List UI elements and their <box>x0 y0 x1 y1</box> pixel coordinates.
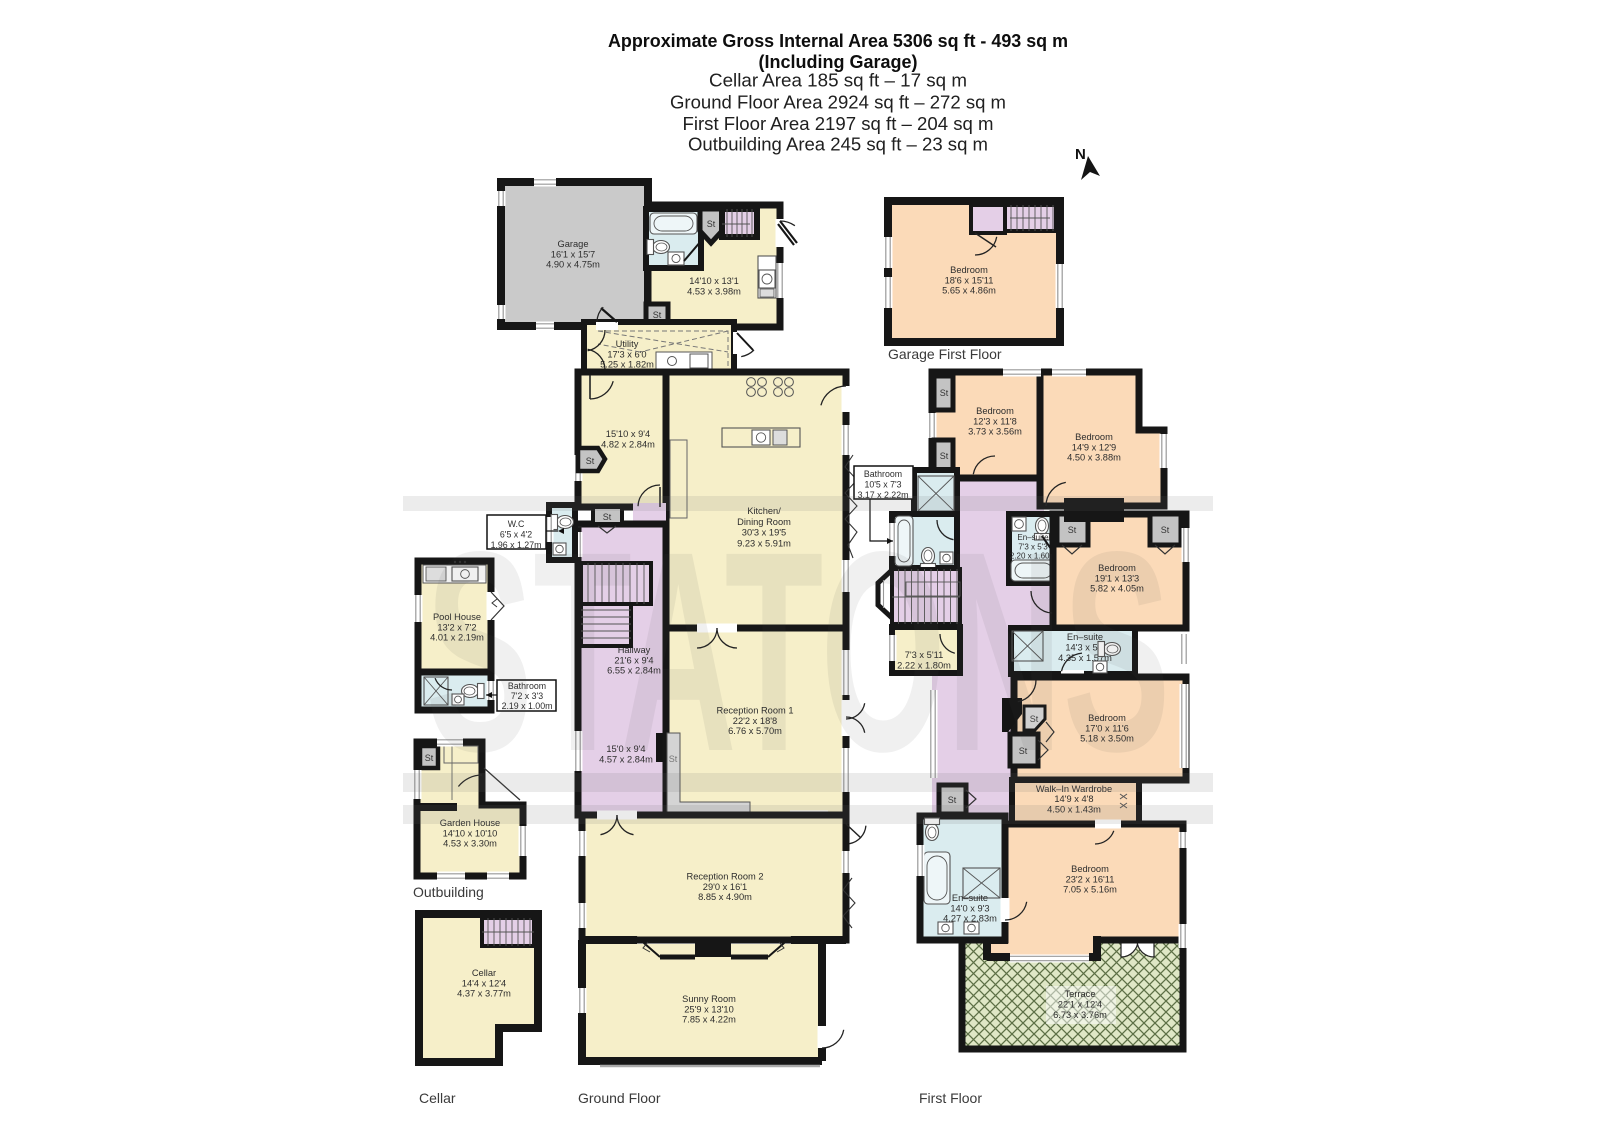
svg-text:Bedroom: Bedroom <box>950 265 988 275</box>
svg-text:First Floor: First Floor <box>919 1090 982 1106</box>
svg-text:Bedroom: Bedroom <box>1075 432 1113 442</box>
svg-text:14'0 x 9'3: 14'0 x 9'3 <box>950 903 989 913</box>
svg-text:14'10 x 13'1: 14'10 x 13'1 <box>689 276 739 286</box>
svg-text:Sunny Room: Sunny Room <box>682 994 736 1004</box>
svg-text:18'6 x 15'11: 18'6 x 15'11 <box>945 275 994 285</box>
svg-text:Bedroom: Bedroom <box>976 406 1014 416</box>
svg-text:Bedroom: Bedroom <box>1071 864 1109 874</box>
svg-text:St: St <box>586 456 595 466</box>
svg-text:Cellar: Cellar <box>419 1090 456 1106</box>
svg-text:14'4 x 12'4: 14'4 x 12'4 <box>462 978 506 988</box>
svg-text:First Floor Area 2197 sq ft –: First Floor Area 2197 sq ft – 204 sq m <box>683 113 994 134</box>
svg-text:5.25 x 1.82m: 5.25 x 1.82m <box>600 360 654 370</box>
svg-text:14'10 x 10'10: 14'10 x 10'10 <box>443 828 498 838</box>
svg-text:3.73 x 3.56m: 3.73 x 3.56m <box>968 427 1022 437</box>
svg-text:St: St <box>940 451 949 461</box>
svg-text:23'2 x 16'11: 23'2 x 16'11 <box>1066 874 1115 884</box>
svg-text:Ground Floor: Ground Floor <box>578 1090 661 1106</box>
svg-text:6.73 x 3.76m: 6.73 x 3.76m <box>1053 1010 1107 1020</box>
svg-text:29'0 x 16'1: 29'0 x 16'1 <box>703 882 747 892</box>
svg-text:4.27 x 2.83m: 4.27 x 2.83m <box>943 914 997 924</box>
svg-text:22'1 x 12'4: 22'1 x 12'4 <box>1058 1000 1102 1010</box>
svg-text:4.37 x 3.77m: 4.37 x 3.77m <box>457 989 511 999</box>
svg-text:St: St <box>653 310 662 320</box>
svg-text:St: St <box>707 219 716 229</box>
svg-text:Utility: Utility <box>616 339 639 349</box>
svg-text:14'9 x 12'9: 14'9 x 12'9 <box>1072 442 1116 452</box>
svg-text:Outbuilding Area 245 sq ft – 2: Outbuilding Area 245 sq ft – 23 sq m <box>688 134 988 155</box>
svg-text:Reception Room 2: Reception Room 2 <box>687 872 764 882</box>
svg-text:Ground Floor Area 2924 sq ft –: Ground Floor Area 2924 sq ft – 272 sq m <box>670 92 1006 113</box>
svg-text:Cellar: Cellar <box>472 968 496 978</box>
svg-text:16'1 x 15'7: 16'1 x 15'7 <box>551 249 595 259</box>
svg-text:Cellar Area 185 sq ft – 17 sq: Cellar Area 185 sq ft – 17 sq m <box>709 70 967 91</box>
svg-text:Terrace: Terrace <box>1065 989 1096 999</box>
svg-text:7.85 x 4.22m: 7.85 x 4.22m <box>682 1015 736 1025</box>
svg-text:St: St <box>940 388 949 398</box>
svg-text:25'9 x 13'10: 25'9 x 13'10 <box>684 1004 734 1014</box>
svg-text:STATONS: STATONS <box>426 493 1171 811</box>
svg-text:8.85 x 4.90m: 8.85 x 4.90m <box>698 892 752 902</box>
svg-text:5.65 x 4.86m: 5.65 x 4.86m <box>942 286 996 296</box>
svg-text:Outbuilding: Outbuilding <box>413 884 484 900</box>
svg-text:4.50 x 3.88m: 4.50 x 3.88m <box>1067 453 1121 463</box>
svg-text:Approximate Gross Internal Are: Approximate Gross Internal Area 5306 sq … <box>608 31 1068 51</box>
svg-text:12'3 x 11'8: 12'3 x 11'8 <box>973 416 1017 426</box>
svg-text:10'5 x 7'3: 10'5 x 7'3 <box>864 479 901 489</box>
svg-text:4.82 x 2.84m: 4.82 x 2.84m <box>601 439 655 449</box>
svg-text:4.53 x 3.30m: 4.53 x 3.30m <box>443 839 497 849</box>
svg-text:En–suite: En–suite <box>952 893 988 903</box>
svg-text:7.05 x 5.16m: 7.05 x 5.16m <box>1063 885 1117 895</box>
svg-text:15'10 x 9'4: 15'10 x 9'4 <box>606 429 650 439</box>
svg-text:Bathroom: Bathroom <box>864 469 902 479</box>
svg-text:4.53 x 3.98m: 4.53 x 3.98m <box>687 286 741 296</box>
svg-text:17'3 x 6'0: 17'3 x 6'0 <box>607 349 646 359</box>
svg-text:Garage: Garage <box>557 239 588 249</box>
svg-text:Garage First Floor: Garage First Floor <box>888 346 1002 362</box>
svg-text:N: N <box>1075 146 1086 163</box>
svg-text:4.90 x 4.75m: 4.90 x 4.75m <box>546 260 600 270</box>
